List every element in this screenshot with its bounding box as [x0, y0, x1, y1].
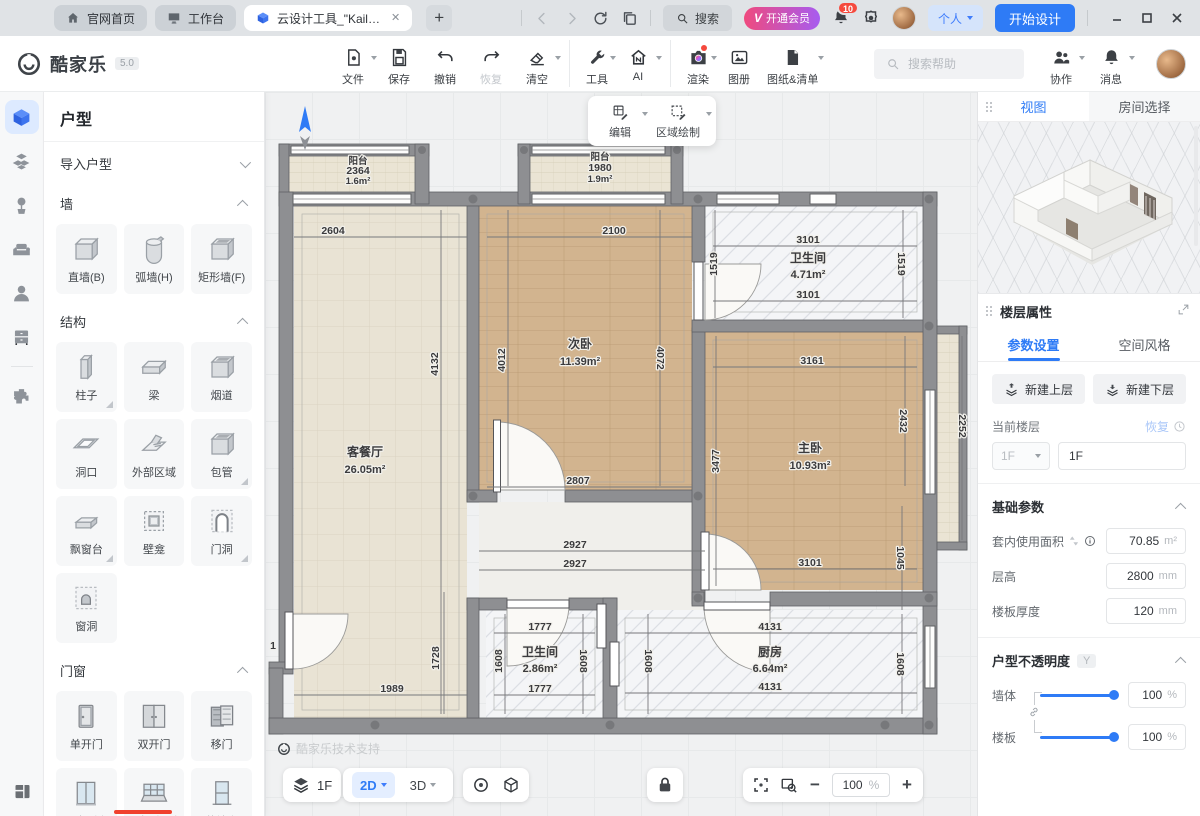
scrollbar[interactable]	[1194, 126, 1198, 246]
brand-name: 酷家乐	[50, 51, 107, 77]
blocks-icon	[11, 151, 32, 172]
floor-props-header: 楼层属性	[978, 294, 1200, 328]
section-structure[interactable]: 结构	[44, 300, 264, 340]
mode-2d-button[interactable]: 2D	[352, 772, 395, 798]
balcony-side-floor[interactable]	[937, 334, 961, 542]
current-floor-label: 当前楼层	[992, 418, 1040, 435]
fit-view-icon[interactable]	[752, 776, 770, 794]
slider-knob[interactable]	[1109, 690, 1119, 700]
search-icon	[886, 57, 900, 71]
svg-text:4.71m²: 4.71m²	[791, 269, 826, 281]
edit-button[interactable]: 编辑	[594, 98, 646, 144]
nav-forward-icon[interactable]	[563, 10, 580, 27]
right-properties-panel: 视图 房间选择 楼层属性 参数设	[977, 92, 1200, 816]
library-item[interactable]: 壁龛	[124, 496, 185, 566]
cabinet-icon	[11, 327, 32, 348]
library-item[interactable]: 单开门	[56, 691, 117, 761]
parameter-input[interactable]: 120mm	[1106, 598, 1186, 624]
chevron-down-icon	[1035, 454, 1041, 458]
restore-link[interactable]: 恢复	[1145, 418, 1186, 435]
start-design-button[interactable]: 开始设计	[995, 4, 1075, 32]
library-item[interactable]: 移门	[191, 691, 252, 761]
svg-text:2927: 2927	[563, 539, 587, 551]
toolbar-button[interactable]: 保存	[376, 40, 422, 87]
floorplan-library-panel: 户型 导入户型 墙 直墙(B) 弧墙(H)	[44, 92, 265, 816]
library-item[interactable]: 双开门	[124, 691, 185, 761]
svg-text:1519: 1519	[895, 252, 907, 276]
svg-text:1777: 1777	[528, 621, 552, 633]
zoom-level-input[interactable]: 100%	[832, 773, 890, 797]
divider	[521, 10, 522, 26]
notification-badge: 10	[837, 1, 859, 15]
puzzle-icon	[11, 386, 32, 407]
region-draw-button[interactable]: 区域绘制	[646, 98, 710, 144]
svg-text:1608: 1608	[577, 649, 589, 673]
section-import-floorplan[interactable]: 导入户型	[44, 142, 264, 182]
slider-knob[interactable]	[1109, 732, 1119, 742]
svg-text:1.6m²: 1.6m²	[346, 176, 371, 187]
opacity-header[interactable]: 户型不透明度 Y	[992, 651, 1186, 670]
version-badge: 5.0	[115, 57, 139, 70]
edit-icon	[612, 104, 629, 121]
parameter-row: 楼板厚度 120mm	[992, 598, 1186, 624]
opacity-input[interactable]: 100%	[1128, 682, 1186, 708]
divider	[650, 10, 651, 26]
link-icon[interactable]	[1028, 706, 1040, 721]
svg-text:3477: 3477	[710, 449, 722, 473]
library-item[interactable]: 直墙(B)	[56, 224, 117, 294]
corner-more-indicator	[241, 478, 248, 485]
svg-text:客餐厅: 客餐厅	[346, 444, 383, 459]
sofa-icon	[11, 239, 32, 260]
svg-text:次卧: 次卧	[568, 336, 592, 351]
svg-text:1777: 1777	[528, 683, 552, 695]
chevron-down-icon	[1079, 56, 1085, 60]
svg-text:1608: 1608	[894, 652, 906, 676]
divider	[978, 637, 1200, 638]
watermark: 酷家乐技术支持	[277, 740, 380, 757]
library-item[interactable]: 柱子	[56, 342, 117, 412]
chevron-up-icon	[237, 199, 248, 210]
toolbar-button[interactable]: 渲染	[670, 40, 716, 87]
opacity-sliders: 墙体 100% 楼板 100%	[992, 682, 1186, 750]
library-item[interactable]: 一字型窗	[56, 768, 117, 816]
svg-text:厨房: 厨房	[758, 644, 782, 659]
svg-text:2252: 2252	[956, 414, 968, 438]
divider	[11, 366, 33, 367]
svg-text:卫生间: 卫生间	[790, 250, 826, 265]
stack-down-icon	[1105, 382, 1120, 397]
svg-text:1045: 1045	[894, 546, 906, 570]
browser-tab[interactable]: 云设计工具_"Kail… ✕	[244, 5, 412, 31]
kujiale-design-app: 官网首页 工作台 云设计工具_"Kail… ✕ +	[0, 0, 1200, 816]
floating-edit-toolbar: 编辑 区域绘制	[588, 96, 716, 146]
sort-icon[interactable]	[1068, 535, 1080, 547]
toolbar-button[interactable]: 图纸&清单	[762, 40, 823, 87]
svg-text:4131: 4131	[758, 681, 782, 693]
shortcut-key-badge: Y	[1077, 654, 1096, 668]
slider-row: 楼板 100%	[992, 724, 1186, 750]
toolbar-button[interactable]: AI	[615, 40, 661, 87]
maximize-button[interactable]	[1134, 5, 1160, 31]
chevron-down-icon	[1129, 56, 1135, 60]
notifications-button[interactable]: 10	[832, 8, 850, 29]
plant-icon	[11, 195, 32, 216]
divider	[1087, 10, 1088, 26]
library-item[interactable]: 门洞	[191, 496, 252, 566]
toolbar-button[interactable]: 恢复	[468, 40, 514, 87]
toolbar-button[interactable]: 清空	[514, 40, 560, 87]
new-lower-floor-button[interactable]: 新建下层	[1093, 374, 1186, 404]
svg-text:1: 1	[270, 640, 276, 652]
toolbar-button[interactable]: 文件	[330, 40, 376, 87]
search-icon	[676, 12, 689, 25]
svg-text:2807: 2807	[566, 475, 590, 487]
view-orbit-icon[interactable]	[472, 776, 490, 794]
panel-scroll-indicator[interactable]	[114, 810, 172, 814]
svg-text:11.39m²: 11.39m²	[560, 356, 601, 368]
opacity-slider[interactable]	[1040, 694, 1116, 697]
user-menu[interactable]: 个人	[928, 5, 983, 31]
chevron-down-icon	[818, 56, 824, 60]
person-icon	[11, 283, 32, 304]
library-item[interactable]: 洞口	[56, 419, 117, 489]
kujiale-logo-icon	[277, 742, 291, 756]
parameter-input[interactable]: 70.85m²	[1106, 528, 1186, 554]
avatar[interactable]	[892, 6, 916, 30]
svg-text:2432: 2432	[897, 409, 909, 433]
rail-item-panel-toggle[interactable]	[5, 774, 39, 808]
svg-text:2100: 2100	[602, 225, 626, 237]
chevron-down-icon	[381, 783, 387, 787]
history-clock-icon	[1173, 420, 1186, 433]
avatar[interactable]	[1156, 49, 1186, 79]
chevron-down-icon	[240, 156, 251, 167]
browser-tab[interactable]: 官网首页	[54, 5, 147, 31]
settings-icon[interactable]	[862, 9, 880, 27]
svg-text:10.93m²: 10.93m²	[790, 460, 831, 472]
corner-more-indicator	[106, 401, 113, 408]
rail-item-templates[interactable]	[5, 144, 39, 178]
zoom-in-button[interactable]: +	[900, 775, 914, 795]
library-item[interactable]: 外部区域	[124, 419, 185, 489]
library-item[interactable]: 梁	[124, 342, 185, 412]
svg-text:1728: 1728	[430, 646, 442, 670]
floor-select[interactable]: 1F	[992, 442, 1050, 470]
new-tab-button[interactable]: +	[426, 5, 452, 31]
library-item[interactable]: 飘窗台	[56, 496, 117, 566]
tab-room-select[interactable]: 房间选择	[1089, 92, 1200, 121]
svg-text:2927: 2927	[563, 558, 587, 570]
window-titlebar: 官网首页 工作台 云设计工具_"Kail… ✕ +	[0, 0, 1200, 36]
svg-text:1989: 1989	[380, 683, 404, 695]
library-item[interactable]: 落地窗	[191, 768, 252, 816]
svg-text:3101: 3101	[796, 234, 820, 246]
new-upper-floor-button[interactable]: 新建上层	[992, 374, 1085, 404]
library-item[interactable]: 一字型飘窗	[124, 768, 185, 816]
lock-icon[interactable]	[656, 776, 674, 794]
toolbar-button[interactable]: 图册	[716, 40, 762, 87]
minimize-button[interactable]	[1104, 5, 1130, 31]
sliding-door[interactable]	[597, 604, 606, 648]
parameter-input[interactable]: 2800mm	[1106, 563, 1186, 589]
svg-text:3101: 3101	[796, 289, 820, 301]
browser-tabs: 官网首页 工作台 云设计工具_"Kail… ✕	[54, 5, 420, 31]
chevron-down-icon	[706, 112, 712, 116]
zoom-group: − 100% +	[743, 768, 923, 802]
rail-item-softdecor[interactable]	[5, 188, 39, 222]
stack-up-icon	[1004, 382, 1019, 397]
rail-item-custom-cabinet[interactable]	[5, 320, 39, 354]
svg-text:主卧: 主卧	[798, 440, 822, 455]
chevron-down-icon	[656, 56, 662, 60]
rail-item-plugins[interactable]	[5, 379, 39, 413]
library-item[interactable]: 弧墙(H)	[124, 224, 185, 294]
library-item[interactable]: 包管	[191, 419, 252, 489]
svg-text:卫生间: 卫生间	[522, 644, 558, 659]
close-tab-icon[interactable]: ✕	[391, 13, 400, 24]
chevron-up-icon	[1175, 656, 1186, 667]
svg-text:6.64m²: 6.64m²	[753, 663, 788, 675]
svg-text:3101: 3101	[798, 557, 822, 569]
svg-text:26.05m²: 26.05m²	[345, 464, 386, 476]
display-group	[463, 768, 529, 802]
3d-preview[interactable]	[978, 122, 1200, 294]
region-draw-icon	[670, 104, 687, 121]
3d-house-thumbnail	[978, 122, 1200, 294]
divider	[978, 483, 1200, 484]
toolbar-button[interactable]: 消息	[1088, 40, 1134, 87]
search-button[interactable]: 搜索	[663, 5, 732, 31]
toolbar-button[interactable]: 撤销	[422, 40, 468, 87]
north-marker[interactable]	[299, 106, 311, 150]
section-doors-windows[interactable]: 门窗	[44, 649, 264, 689]
panel-title: 户型	[44, 92, 264, 142]
parameter-row: 套内使用面积 70.85m²	[992, 528, 1186, 554]
layers-icon	[292, 776, 310, 794]
floorplan-drawing[interactable]: 阳台23641.6m²阳台19801.9m²260421003101卫生间4.7…	[265, 92, 977, 816]
lock-group	[647, 768, 683, 802]
view-mode-group: 2D 3D	[343, 768, 453, 802]
svg-text:4132: 4132	[429, 352, 441, 376]
vip-member-button[interactable]: V开通会员	[744, 7, 820, 30]
library-item[interactable]: 烟道	[191, 342, 252, 412]
chevron-up-icon	[237, 317, 248, 328]
copy-window-icon[interactable]	[621, 10, 638, 27]
rail-item-floorplan[interactable]	[5, 100, 39, 134]
svg-text:2604: 2604	[321, 225, 345, 237]
floorplan-canvas[interactable]: 阳台23641.6m²阳台19801.9m²260421003101卫生间4.7…	[265, 92, 977, 816]
svg-text:4131: 4131	[758, 621, 782, 633]
help-search-input[interactable]: 搜索帮助	[874, 49, 1024, 79]
tab-parameter-settings[interactable]: 参数设置	[978, 328, 1089, 361]
svg-text:1519: 1519	[708, 252, 720, 276]
rail-item-furniture[interactable]	[5, 232, 39, 266]
cube-3d-icon[interactable]	[502, 776, 520, 794]
basic-params-header[interactable]: 基础参数	[992, 497, 1186, 516]
corner-more-indicator	[241, 555, 248, 562]
svg-text:1980: 1980	[588, 162, 612, 174]
library-item[interactable]: 矩形墙(F)	[191, 224, 252, 294]
chevron-up-icon	[237, 666, 248, 677]
zoom-region-icon[interactable]	[780, 776, 798, 794]
floorplan-cube-icon	[11, 107, 32, 128]
close-button[interactable]	[1164, 5, 1190, 31]
tab-view[interactable]: 视图	[978, 92, 1089, 121]
expand-icon[interactable]	[1177, 303, 1190, 319]
tab-space-style[interactable]: 空间风格	[1089, 328, 1200, 361]
layout-icon	[12, 781, 33, 802]
drag-handle-icon[interactable]	[985, 101, 992, 113]
refresh-icon[interactable]	[592, 10, 609, 27]
parameter-row: 层高 2800mm	[992, 563, 1186, 589]
chevron-down-icon	[430, 783, 436, 787]
brand: 酷家乐 5.0	[0, 51, 330, 77]
svg-text:2.86m²: 2.86m²	[523, 663, 558, 675]
property-subtabs: 参数设置 空间风格	[978, 328, 1200, 362]
drag-handle-icon[interactable]	[985, 305, 992, 317]
browser-tab[interactable]: 工作台	[155, 5, 236, 31]
opacity-slider[interactable]	[1040, 736, 1116, 739]
library-item[interactable]: 窗洞	[56, 573, 117, 643]
opacity-input[interactable]: 100%	[1128, 724, 1186, 750]
mode-3d-button[interactable]: 3D	[402, 772, 445, 798]
rail-item-personal[interactable]	[5, 276, 39, 310]
kujiale-logo-icon	[16, 51, 42, 77]
zoom-out-button[interactable]: −	[808, 775, 822, 795]
app-toolbar: 酷家乐 5.0 文件 保存	[0, 36, 1200, 92]
corner-more-indicator	[106, 555, 113, 562]
toolbar-button[interactable]: 工具	[569, 40, 615, 87]
svg-text:1.9m²: 1.9m²	[588, 174, 613, 185]
svg-text:3161: 3161	[800, 355, 824, 367]
notification-dot	[701, 45, 707, 51]
floor-name-input[interactable]: 1F	[1058, 442, 1186, 470]
view-tabs: 视图 房间选择	[978, 92, 1200, 122]
chevron-up-icon	[1175, 502, 1186, 513]
info-icon[interactable]	[1084, 535, 1096, 547]
svg-text:4072: 4072	[654, 346, 666, 370]
svg-text:1608: 1608	[493, 649, 505, 673]
left-icon-rail	[0, 92, 44, 816]
nav-back-icon[interactable]	[534, 10, 551, 27]
svg-text:1608: 1608	[642, 649, 654, 673]
chevron-down-icon	[967, 16, 973, 20]
slider-row: 墙体 100%	[992, 682, 1186, 708]
hallway-floor[interactable]	[479, 502, 705, 610]
toolbar-button[interactable]: 协作	[1038, 40, 1084, 87]
chevron-down-icon	[555, 56, 561, 60]
floor-switcher[interactable]: 1F	[283, 768, 341, 802]
section-wall[interactable]: 墙	[44, 182, 264, 222]
svg-text:4012: 4012	[496, 348, 508, 372]
